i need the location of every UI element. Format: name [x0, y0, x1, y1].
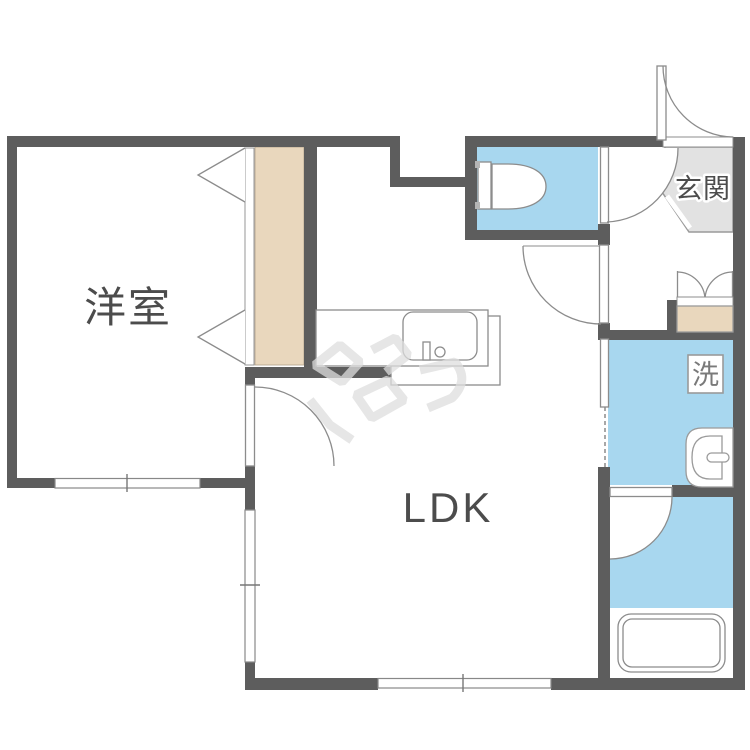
front-door-leaf — [657, 66, 666, 140]
bath-door-leaf — [610, 488, 672, 497]
wall — [551, 678, 745, 690]
ldk-door-opening — [600, 245, 609, 323]
kitchen-drain — [435, 347, 445, 357]
kitchen-faucet — [423, 342, 430, 360]
wall — [7, 136, 400, 147]
wall — [465, 147, 477, 240]
shoe-cabinet-door-arc — [677, 272, 705, 300]
toilet-tank — [478, 162, 491, 209]
wall — [245, 662, 255, 678]
wall — [245, 678, 378, 690]
washbasin-faucet — [707, 453, 729, 462]
label-entrance: 玄関 — [675, 174, 731, 204]
toilet-tank-detail — [475, 202, 480, 209]
closet-bifold-door — [198, 310, 245, 364]
closet-floor — [255, 147, 304, 365]
wall — [598, 467, 610, 495]
front-door-arc — [663, 66, 733, 137]
front-door-threshold — [663, 137, 733, 147]
shoe-cabinet-door-arc — [705, 272, 733, 300]
toilet-tank-detail — [475, 161, 480, 168]
wall — [465, 230, 610, 240]
toilet-door-leaf — [601, 147, 609, 223]
watermark-shape — [356, 380, 404, 418]
wall — [7, 478, 55, 488]
wall — [598, 224, 610, 245]
wall — [304, 147, 317, 367]
window-ldk-west — [245, 510, 255, 662]
shoe-cabinet-top — [677, 297, 733, 306]
label-western-room: 洋室 — [84, 284, 172, 331]
wall — [667, 300, 677, 340]
watermark-shape — [310, 400, 352, 440]
west-room-door-leaf — [246, 385, 255, 466]
wall — [7, 147, 17, 488]
toilet-door-swing-area — [605, 148, 678, 222]
wall — [598, 495, 610, 690]
shoe-cabinet — [677, 306, 733, 332]
wall — [245, 466, 255, 510]
west-room-door-arc — [255, 387, 334, 466]
label-ldk: LDK — [403, 484, 494, 531]
ldk-door-arc — [523, 246, 601, 324]
wall — [465, 136, 663, 147]
washroom-sliding-door — [601, 339, 609, 407]
wall — [733, 137, 745, 690]
label-washer: 洗 — [692, 360, 719, 390]
closet-track — [245, 148, 254, 365]
bathtub-inner — [623, 619, 720, 667]
wall — [390, 177, 467, 187]
wall — [245, 378, 255, 385]
closet-bifold-door — [198, 148, 245, 202]
floor-plan-canvas: 洋室 LDK 玄関 洗 — [0, 0, 750, 750]
toilet-bowl — [492, 164, 546, 209]
floor-plan: 洋室 LDK 玄関 洗 — [0, 0, 750, 750]
window-ldk-south — [378, 679, 551, 689]
